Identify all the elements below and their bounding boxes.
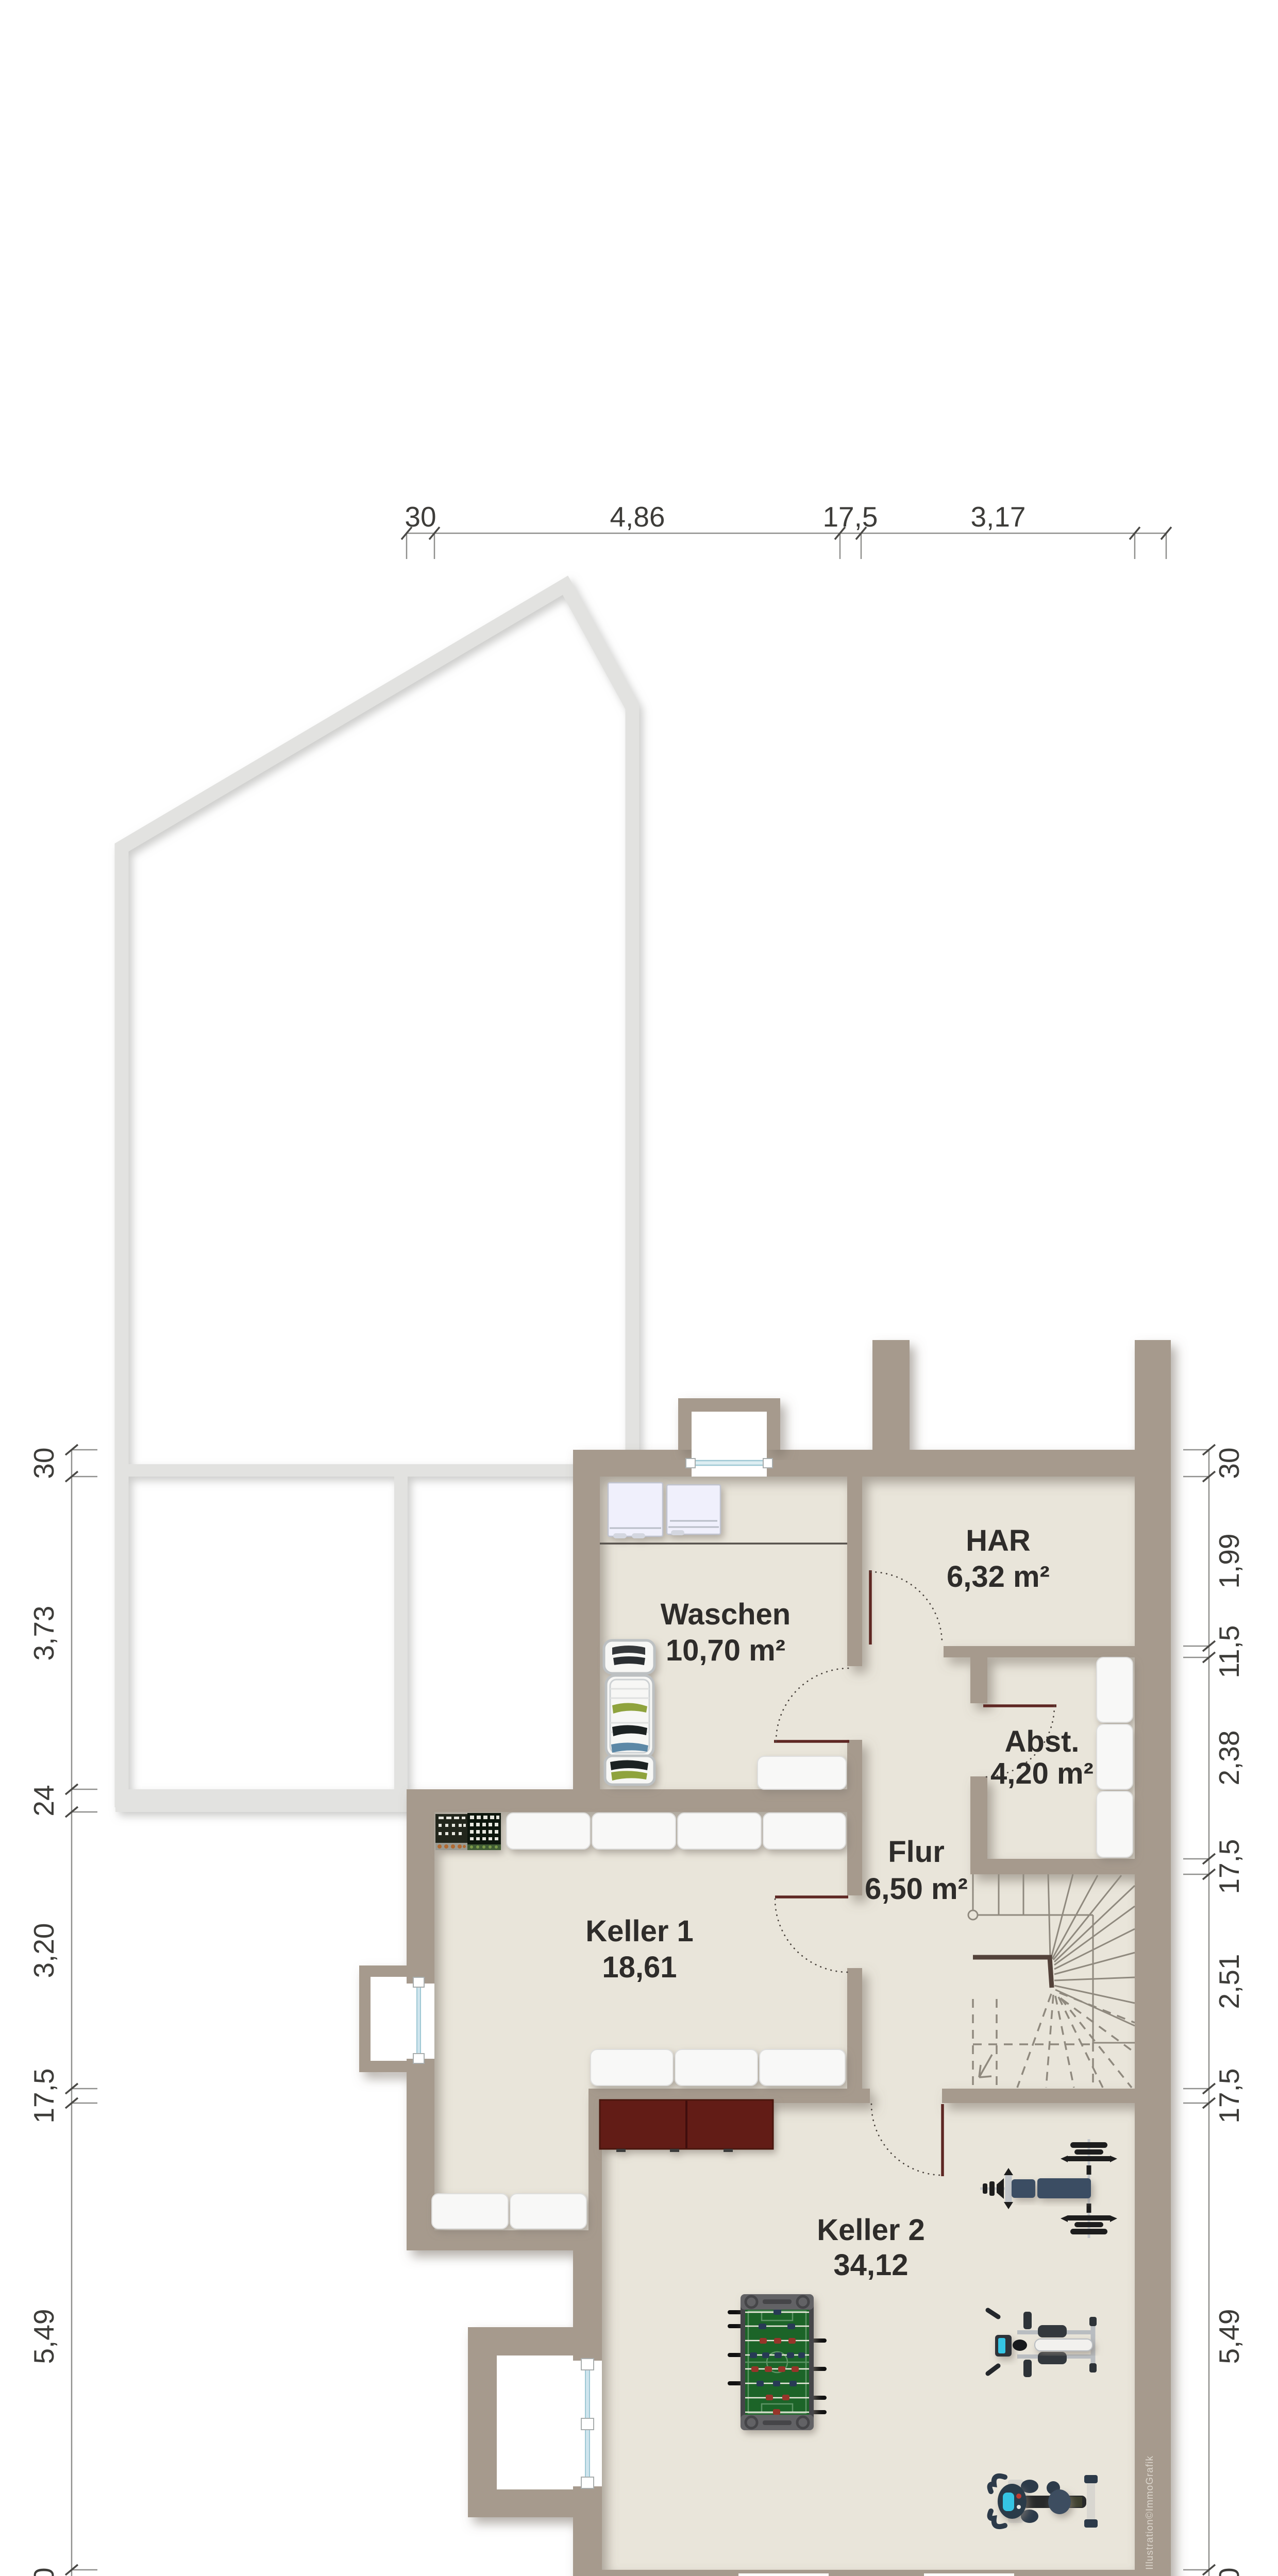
svg-text:4,20 m²: 4,20 m²: [990, 1757, 1094, 1790]
svg-text:5,49: 5,49: [28, 2309, 60, 2364]
svg-text:18,61: 18,61: [602, 1951, 677, 1984]
svg-text:6,32 m²: 6,32 m²: [947, 1560, 1050, 1594]
svg-text:11,5: 11,5: [1213, 1625, 1245, 1679]
svg-text:Illustration©ImmoGrafik: Illustration©ImmoGrafik: [1145, 2455, 1155, 2570]
svg-text:24: 24: [28, 1785, 60, 1816]
svg-text:1,99: 1,99: [1213, 1533, 1245, 1588]
svg-text:3,17: 3,17: [970, 501, 1025, 533]
svg-text:Keller 2: Keller 2: [817, 2213, 925, 2247]
svg-text:17,5: 17,5: [28, 2068, 60, 2123]
svg-text:2,38: 2,38: [1213, 1730, 1245, 1785]
svg-text:2,51: 2,51: [1213, 1954, 1245, 2009]
svg-text:3,73: 3,73: [28, 1605, 60, 1660]
svg-text:3,20: 3,20: [28, 1923, 60, 1978]
svg-text:Abst.: Abst.: [1005, 1725, 1080, 1758]
svg-text:30: 30: [1213, 2567, 1245, 2576]
svg-text:17,5: 17,5: [822, 501, 878, 533]
svg-text:Waschen: Waschen: [661, 1598, 791, 1631]
svg-text:Keller 1: Keller 1: [585, 1914, 694, 1948]
svg-text:30: 30: [28, 1447, 60, 1479]
svg-text:Flur: Flur: [888, 1835, 945, 1869]
svg-text:30: 30: [405, 501, 436, 533]
svg-text:17,5: 17,5: [1213, 1839, 1245, 1894]
svg-text:34,12: 34,12: [833, 2248, 908, 2282]
svg-text:4,86: 4,86: [610, 501, 665, 533]
svg-text:30: 30: [28, 2567, 60, 2576]
svg-text:17,5: 17,5: [1213, 2068, 1245, 2123]
svg-text:6,50 m²: 6,50 m²: [865, 1872, 968, 1906]
svg-text:10,70 m²: 10,70 m²: [666, 1634, 785, 1667]
svg-text:5,49: 5,49: [1213, 2309, 1245, 2364]
svg-text:HAR: HAR: [966, 1524, 1031, 1557]
svg-text:30: 30: [1213, 1447, 1245, 1479]
